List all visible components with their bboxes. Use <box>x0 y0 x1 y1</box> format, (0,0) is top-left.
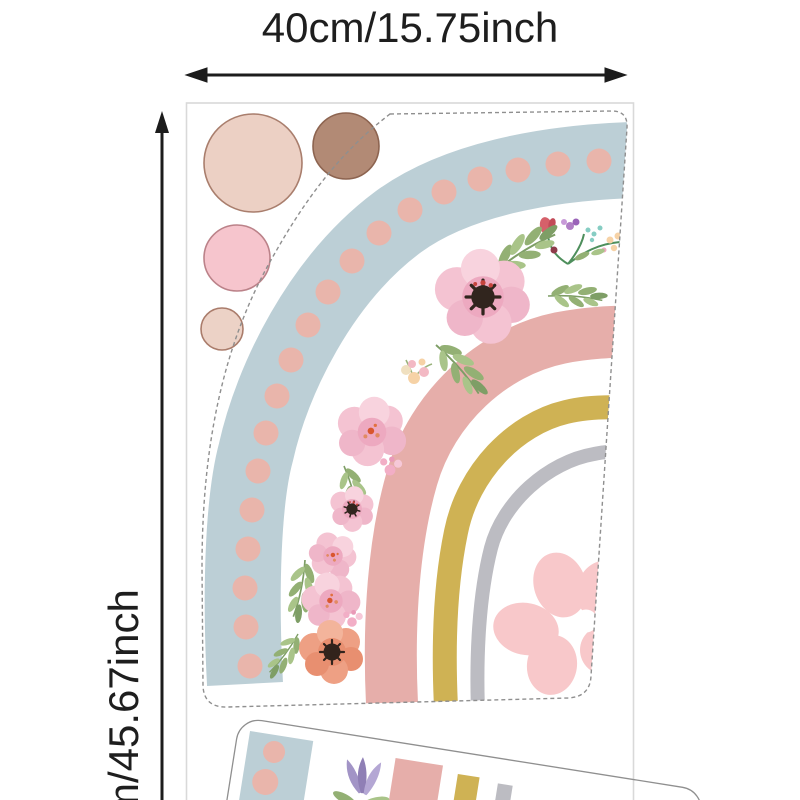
height-arrow <box>155 111 169 800</box>
decal-circle <box>204 114 302 212</box>
width-dimension-label: 40cm/15.75inch <box>180 4 640 52</box>
decal-circle <box>204 225 270 291</box>
product-dimension-image: { "annotations": { "width_label": "40cm/… <box>0 0 800 800</box>
width-arrow <box>186 68 626 82</box>
decal-circle <box>201 308 243 350</box>
decal-circle <box>313 113 379 179</box>
height-dimension-label: m/45.67inch <box>99 589 149 800</box>
